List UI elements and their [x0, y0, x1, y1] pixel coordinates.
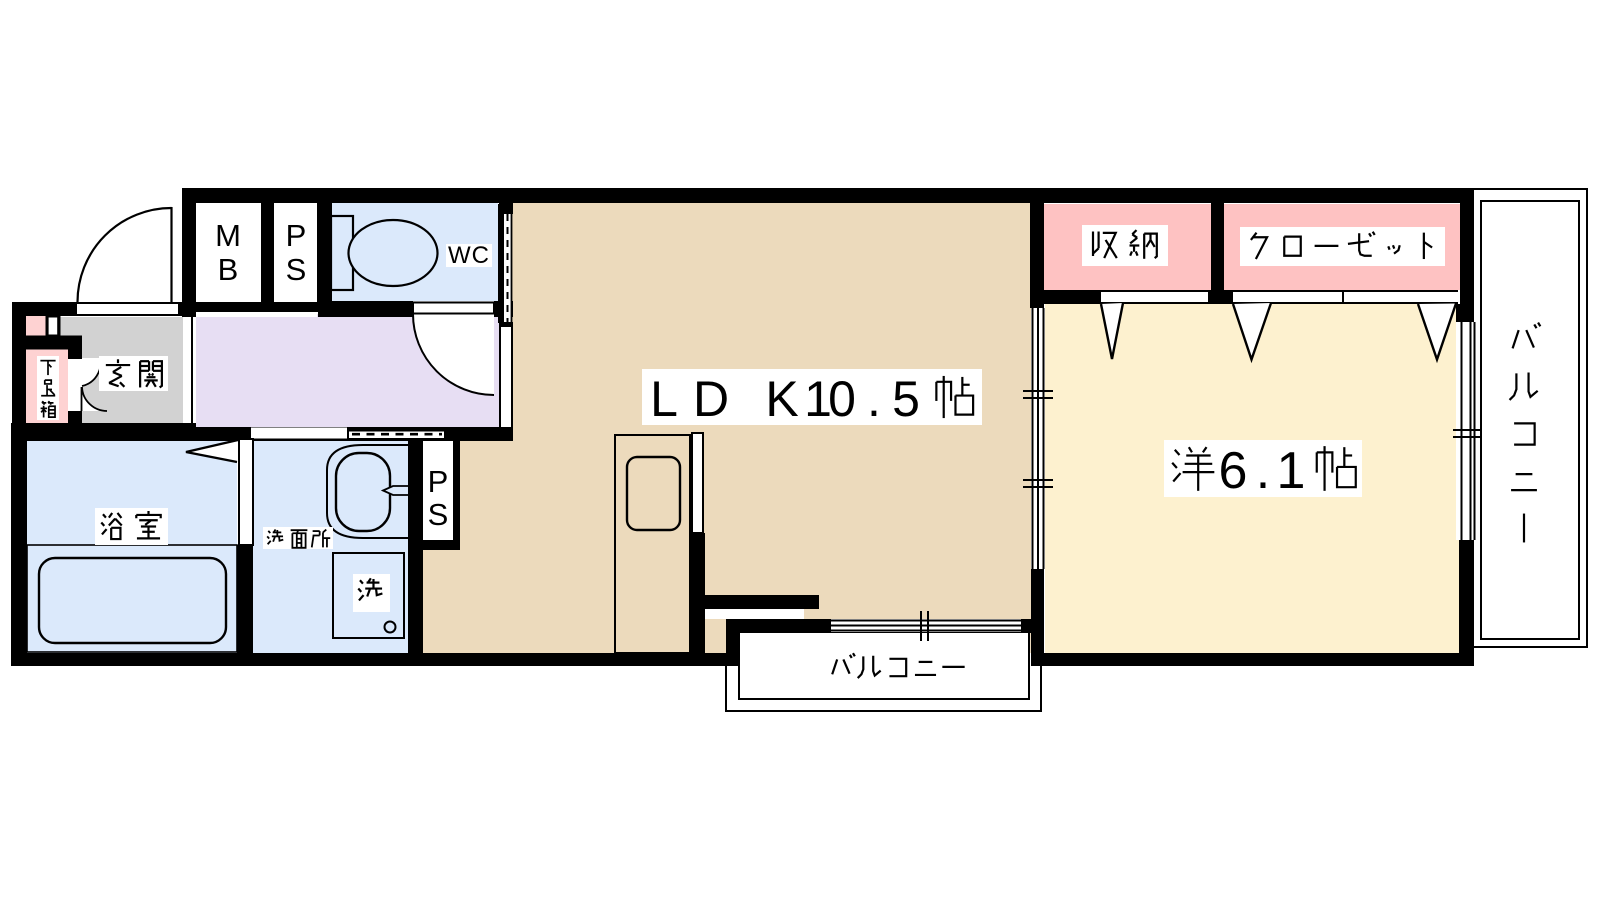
- svg-text:K: K: [765, 371, 798, 427]
- svg-text:D: D: [693, 371, 729, 427]
- svg-text:.: .: [1256, 442, 1270, 500]
- svg-text:P: P: [428, 464, 449, 499]
- svg-text:5: 5: [892, 371, 920, 427]
- svg-text:0: 0: [828, 371, 856, 427]
- svg-text:.: .: [867, 371, 881, 427]
- svg-text:L: L: [650, 371, 678, 427]
- svg-text:1: 1: [1277, 442, 1306, 500]
- svg-text:6: 6: [1219, 442, 1248, 500]
- svg-text:B: B: [218, 252, 239, 287]
- svg-text:S: S: [286, 252, 307, 287]
- svg-text:S: S: [428, 497, 449, 532]
- svg-text:P: P: [286, 218, 307, 253]
- svg-text:WC: WC: [448, 242, 490, 269]
- svg-text:M: M: [215, 218, 241, 253]
